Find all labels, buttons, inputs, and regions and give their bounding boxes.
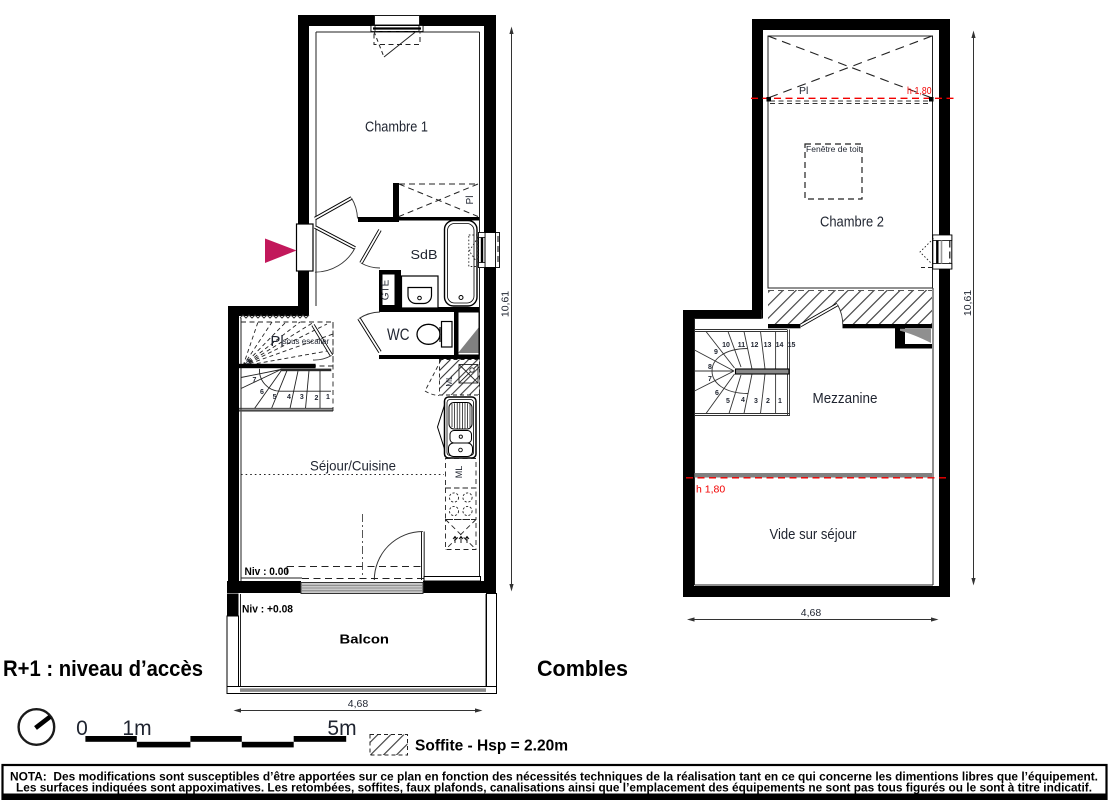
svg-text:4: 4 xyxy=(741,397,745,404)
svg-text:8: 8 xyxy=(708,364,712,371)
svg-text:7: 7 xyxy=(252,377,256,384)
svg-text:SdB: SdB xyxy=(411,248,438,262)
svg-text:6: 6 xyxy=(260,389,264,396)
svg-text:9: 9 xyxy=(714,349,718,356)
svg-text:Combles: Combles xyxy=(537,656,628,681)
svg-text:Chambre 1: Chambre 1 xyxy=(365,120,428,136)
svg-text:4: 4 xyxy=(287,394,291,401)
svg-text:14: 14 xyxy=(776,342,784,349)
svg-text:13: 13 xyxy=(764,342,772,349)
svg-text:7: 7 xyxy=(708,376,712,383)
svg-text:1: 1 xyxy=(778,398,782,405)
svg-text:Séjour/Cuisine: Séjour/Cuisine xyxy=(310,458,396,474)
svg-text:5: 5 xyxy=(273,394,277,401)
svg-text:3: 3 xyxy=(300,394,304,401)
svg-text:10,61: 10,61 xyxy=(500,291,512,317)
svg-text:Vide sur séjour: Vide sur séjour xyxy=(770,527,857,543)
svg-text:Niv : +0.08: Niv : +0.08 xyxy=(242,604,293,616)
svg-text:8: 8 xyxy=(246,359,250,366)
svg-text:Les surfaces indiquées sont ap: Les surfaces indiquées sont appoximative… xyxy=(16,782,1092,794)
svg-text:Fenêtre de toit: Fenêtre de toit xyxy=(806,145,862,154)
svg-text:Mezzanine: Mezzanine xyxy=(813,391,878,407)
svg-text:12: 12 xyxy=(751,342,759,349)
svg-text:ML: ML xyxy=(445,375,454,387)
svg-text:15: 15 xyxy=(788,342,796,349)
svg-text:GTE: GTE xyxy=(381,279,392,300)
svg-text:6: 6 xyxy=(715,390,719,397)
svg-text:Pl: Pl xyxy=(465,196,476,205)
svg-text:4,68: 4,68 xyxy=(801,607,822,619)
svg-text:4,68: 4,68 xyxy=(348,698,369,710)
svg-text:1: 1 xyxy=(326,394,330,401)
svg-text:sous escalier: sous escalier xyxy=(283,337,330,346)
svg-text:Soffite - Hsp = 2.20m: Soffite - Hsp = 2.20m xyxy=(415,738,568,755)
svg-text:11: 11 xyxy=(738,342,746,349)
svg-text:10,61: 10,61 xyxy=(962,290,974,316)
svg-text:2: 2 xyxy=(766,398,770,405)
svg-text:Pl: Pl xyxy=(799,85,808,97)
svg-text:3: 3 xyxy=(754,398,758,405)
svg-text:10: 10 xyxy=(722,342,730,349)
svg-text:2: 2 xyxy=(315,395,319,402)
svg-text:Balcon: Balcon xyxy=(340,632,390,647)
svg-text:R+1 : niveau d’accès: R+1 : niveau d’accès xyxy=(3,656,203,681)
svg-text:5: 5 xyxy=(726,398,730,405)
svg-text:h-1,80: h-1,80 xyxy=(907,85,932,97)
svg-text:WC: WC xyxy=(387,326,410,344)
svg-text:h 1,80: h 1,80 xyxy=(696,484,725,496)
svg-text:ML: ML xyxy=(454,466,464,479)
svg-text:Pl: Pl xyxy=(270,333,283,350)
svg-text:Chambre 2: Chambre 2 xyxy=(820,215,884,231)
svg-text:Niv : 0.00: Niv : 0.00 xyxy=(245,566,290,578)
